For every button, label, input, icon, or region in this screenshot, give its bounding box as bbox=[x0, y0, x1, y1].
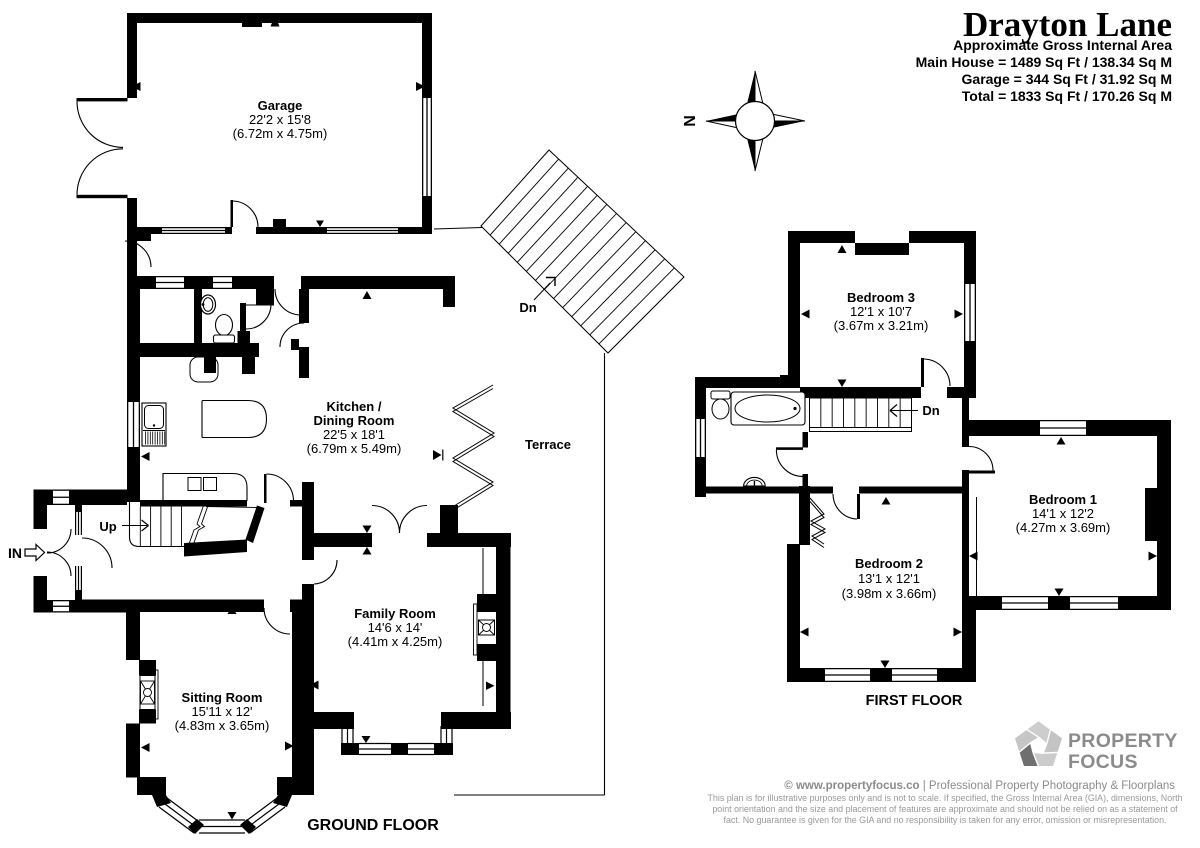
svg-text:IN: IN bbox=[8, 545, 22, 561]
svg-text:Sitting Room: Sitting Room bbox=[182, 690, 263, 705]
svg-text:© www.propertyfocus.co | Profe: © www.propertyfocus.co | Professional Pr… bbox=[784, 780, 1175, 792]
svg-text:PROPERTY: PROPERTY bbox=[1068, 730, 1178, 752]
svg-text:13'1 x 12'1: 13'1 x 12'1 bbox=[858, 571, 920, 586]
svg-text:Dining Room: Dining Room bbox=[314, 413, 395, 428]
svg-text:GROUND FLOOR: GROUND FLOOR bbox=[307, 817, 439, 834]
svg-text:(4.41m x 4.25m): (4.41m x 4.25m) bbox=[348, 634, 443, 649]
svg-text:This plan is for illustrative: This plan is for illustrative purposes o… bbox=[707, 793, 1182, 803]
svg-text:FOCUS: FOCUS bbox=[1068, 751, 1138, 773]
svg-text:Total = 1833 Sq Ft / 170.26 Sq: Total = 1833 Sq Ft / 170.26 Sq M bbox=[962, 88, 1172, 104]
svg-text:Approximate Gross Internal Are: Approximate Gross Internal Area bbox=[953, 37, 1172, 53]
svg-text:(4.27m x 3.69m): (4.27m x 3.69m) bbox=[1016, 520, 1111, 535]
svg-text:Garage = 344 Sq Ft / 31.92 Sq: Garage = 344 Sq Ft / 31.92 Sq M bbox=[962, 71, 1172, 87]
svg-text:Main House = 1489 Sq Ft / 138.: Main House = 1489 Sq Ft / 138.34 Sq M bbox=[916, 54, 1172, 70]
svg-text:Family Room: Family Room bbox=[354, 606, 436, 621]
svg-text:Bedroom 3: Bedroom 3 bbox=[847, 290, 915, 305]
svg-text:Terrace: Terrace bbox=[525, 437, 571, 452]
svg-text:(3.67m x 3.21m): (3.67m x 3.21m) bbox=[834, 318, 929, 333]
svg-text:(6.72m x 4.75m): (6.72m x 4.75m) bbox=[233, 126, 328, 141]
svg-text:15'11 x 12': 15'11 x 12' bbox=[191, 704, 252, 719]
svg-text:14'6 x 14': 14'6 x 14' bbox=[368, 620, 423, 635]
svg-text:fact. No guarantee is given fo: fact. No guarantee is given for the GIA … bbox=[724, 815, 1167, 825]
svg-text:22'2 x 15'8: 22'2 x 15'8 bbox=[249, 112, 311, 127]
svg-text:12'1 x 10'7: 12'1 x 10'7 bbox=[850, 304, 912, 319]
svg-text:(3.98m x 3.66m): (3.98m x 3.66m) bbox=[842, 586, 937, 601]
svg-text:(6.79m x 5.49m): (6.79m x 5.49m) bbox=[307, 441, 402, 456]
svg-text:point orientation and the size: point orientation and the size and place… bbox=[712, 804, 1178, 814]
svg-text:Bedroom 2: Bedroom 2 bbox=[855, 556, 923, 571]
svg-text:Dn: Dn bbox=[922, 403, 939, 418]
svg-text:Up: Up bbox=[99, 519, 116, 534]
svg-text:Kitchen /: Kitchen / bbox=[327, 399, 382, 414]
svg-text:Garage: Garage bbox=[258, 98, 303, 113]
svg-text:(4.83m x 3.65m): (4.83m x 3.65m) bbox=[175, 718, 270, 733]
svg-text:22'5 x 18'1: 22'5 x 18'1 bbox=[323, 427, 385, 442]
svg-text:14'1 x 12'2: 14'1 x 12'2 bbox=[1032, 506, 1094, 521]
svg-text:N: N bbox=[682, 115, 699, 127]
svg-text:Bedroom 1: Bedroom 1 bbox=[1029, 492, 1097, 507]
svg-text:Dn: Dn bbox=[519, 300, 536, 315]
svg-text:FIRST FLOOR: FIRST FLOOR bbox=[866, 693, 963, 709]
